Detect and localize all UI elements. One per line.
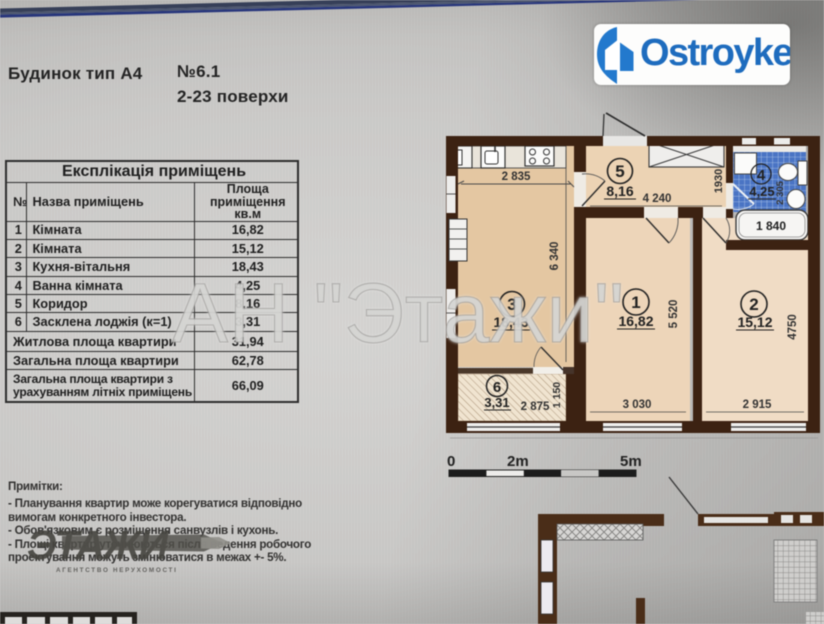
svg-text:1930: 1930 xyxy=(713,169,725,193)
svg-text:3 030: 3 030 xyxy=(623,399,652,411)
svg-text:2 835: 2 835 xyxy=(502,171,531,183)
svg-text:5: 5 xyxy=(615,162,624,181)
svg-text:2 305: 2 305 xyxy=(775,180,786,204)
svg-text:2m: 2m xyxy=(507,453,529,470)
svg-text:4750: 4750 xyxy=(787,314,799,340)
svg-text:2: 2 xyxy=(749,295,758,314)
svg-text:1 840: 1 840 xyxy=(756,219,786,233)
svg-text:2 875: 2 875 xyxy=(521,401,550,413)
svg-text:1: 1 xyxy=(631,293,640,312)
svg-text:15,12: 15,12 xyxy=(737,314,772,330)
svg-text:0: 0 xyxy=(447,453,455,470)
svg-text:3,31: 3,31 xyxy=(484,395,509,410)
svg-text:4,25: 4,25 xyxy=(749,184,774,199)
svg-text:6: 6 xyxy=(493,379,501,396)
svg-text:4: 4 xyxy=(757,167,766,184)
svg-text:1 150: 1 150 xyxy=(551,382,563,408)
svg-text:8,16: 8,16 xyxy=(606,183,633,199)
svg-text:АГЕНТСТВО НЕРУХОМОСТІ: АГЕНТСТВО НЕРУХОМОСТІ xyxy=(56,567,178,574)
svg-text:5m: 5m xyxy=(620,453,642,470)
svg-text:5 520: 5 520 xyxy=(668,300,680,329)
svg-text:2 915: 2 915 xyxy=(743,399,772,411)
svg-text:4 240: 4 240 xyxy=(643,193,672,205)
